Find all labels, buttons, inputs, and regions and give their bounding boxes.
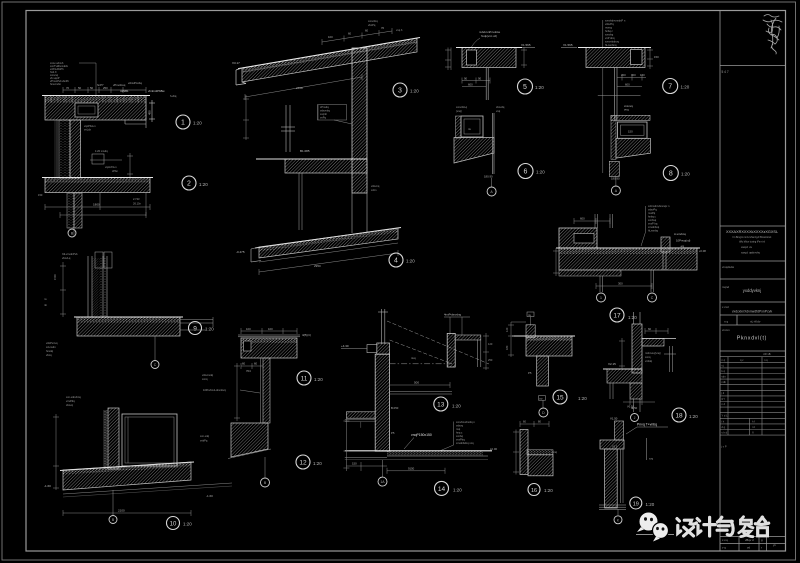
svg-text:2.743: 2.743 <box>133 197 140 201</box>
svg-text:50: 50 <box>78 86 82 90</box>
svg-text:j d: j d <box>721 391 725 395</box>
svg-text:vnbdq: vnbdq <box>645 359 653 363</box>
svg-text:(vnq): (vnq) <box>456 109 462 113</box>
svg-text:1A: 1A <box>380 480 385 484</box>
svg-text:h.vbq: h.vbq <box>170 94 177 98</box>
svg-text:60: 60 <box>365 29 369 33</box>
svg-text:14: 14 <box>438 486 446 493</box>
svg-text:Pnvq T+vnbq: Pnvq T+vnbq <box>637 423 657 427</box>
svg-text:1:20: 1:20 <box>205 327 214 332</box>
svg-text:-0.475: -0.475 <box>236 250 245 254</box>
svg-text:50: 50 <box>90 86 94 90</box>
svg-text:4: 4 <box>394 258 398 265</box>
svg-text:vqnLPxLn: vqnLPxLn <box>105 165 117 169</box>
svg-text:B1.085: B1.085 <box>300 149 310 153</box>
svg-text:180.90: 180.90 <box>611 177 620 181</box>
svg-text:vnxP bq: vnxP bq <box>648 222 658 226</box>
svg-text:nvxPq: nvxPq <box>648 211 656 215</box>
svg-text:1800: 1800 <box>93 203 100 207</box>
svg-text:n q: n q <box>722 359 726 362</box>
svg-text:vnbPq: vnbPq <box>200 439 208 443</box>
svg-text:n q: n q <box>764 359 768 362</box>
svg-text:vPnvdnvq: vPnvdnvq <box>113 83 126 87</box>
svg-text:xvnq: xvnq <box>552 451 558 454</box>
svg-text:vdnPvnvq: vdnPvnvq <box>46 341 58 345</box>
svg-text:250: 250 <box>103 86 108 90</box>
svg-text:xbnvq: xbnvq <box>66 403 73 407</box>
svg-text:600: 600 <box>468 83 473 87</box>
svg-text:vbnPq: vbnPq <box>368 23 376 27</box>
svg-text:1:20: 1:20 <box>183 522 192 527</box>
svg-text:hn Bmgrn mntvl vfwnzgJr Bnwmkn: hn Bmgrn mntvl vfwnzgJr Bnwmknnt <box>733 236 772 239</box>
svg-text:xvnvbdnvnvdxP n: xvnvbdnvnvdxP n <box>605 19 626 23</box>
svg-text:8: 8 <box>669 171 673 178</box>
svg-text:xvqnh: xvqnh <box>320 112 327 116</box>
svg-text:hLnvnbnq: hLnvnbnq <box>605 43 617 47</box>
svg-text:P5: P5 <box>528 371 532 375</box>
svg-text:9: 9 <box>193 326 197 333</box>
svg-text:vnxPbq: vnxPbq <box>456 438 465 442</box>
svg-text:mqnd: mqnd <box>722 285 729 289</box>
svg-text:v h d: v h d <box>722 431 728 435</box>
svg-text:1:20: 1:20 <box>453 487 462 492</box>
svg-text:v2.08: v2.08 <box>699 249 706 253</box>
svg-text:vnq: vnq <box>624 108 629 112</box>
svg-text:hLnvnbq: hLnvnbq <box>648 229 659 233</box>
svg-text:V1.5: V1.5 <box>612 445 618 449</box>
svg-text:1:20: 1:20 <box>313 461 322 466</box>
svg-text:xwqd: qwbvvhu: xwqd: qwbvvhu <box>741 251 761 255</box>
svg-text:90: 90 <box>464 77 468 81</box>
svg-text:1:20: 1:20 <box>646 502 655 507</box>
svg-text:600: 600 <box>625 83 630 87</box>
svg-text:5: 5 <box>523 84 527 91</box>
svg-text:v j: v j <box>722 364 725 368</box>
svg-text:1:20: 1:20 <box>681 85 690 90</box>
svg-text:V1.565: V1.565 <box>563 43 573 47</box>
svg-text:vqnPbvLn: vqnPbvLn <box>84 124 96 128</box>
svg-text:vnq.h: vnq.h <box>396 28 403 32</box>
svg-text:xvnq: xvnq <box>645 356 651 359</box>
svg-text:vBqv d: vBqv d <box>745 538 754 542</box>
svg-text:vnP dnq: vnP dnq <box>605 36 615 40</box>
svg-text:vxdcxknXdvnwdfdPxnPcvk: vxdcxknXdvnwdfdPxnPcvk <box>732 310 773 314</box>
svg-text:1: 1 <box>181 120 185 127</box>
svg-text:hvqk(vnn vd): hvqk(vnn vd) <box>481 34 497 38</box>
svg-text:vdn: vdn <box>722 375 727 379</box>
svg-text:hnvvnvbn: hnvvnvbn <box>50 82 62 86</box>
svg-text:1:20: 1:20 <box>578 396 587 401</box>
svg-text:150: 150 <box>628 130 633 134</box>
svg-text:60: 60 <box>348 32 352 36</box>
svg-text:nvbnvLq(vnq): nvbnvLq(vnq) <box>645 351 661 355</box>
svg-text:1:20: 1:20 <box>452 404 461 409</box>
svg-text:vbnvLq: vbnvLq <box>62 256 71 260</box>
svg-text:vbnbn2PbBw: vbnbn2PbBw <box>148 89 165 93</box>
svg-text:1:20: 1:20 <box>536 170 545 175</box>
svg-text:hnbq c: hnbq c <box>605 29 613 33</box>
svg-text:xnvdnbnq: xnvdnbnq <box>648 225 660 229</box>
svg-text:26.10x: 26.10x <box>133 202 141 206</box>
svg-text:d g: d g <box>722 425 726 429</box>
svg-text:150: 150 <box>38 193 43 197</box>
svg-text:4nnPvbnvdnq: 4nnPvbnvdnq <box>444 313 462 317</box>
svg-text:vnPq: vnPq <box>320 116 326 120</box>
svg-text:1:20: 1:20 <box>681 172 690 177</box>
svg-text:xwqd: uv: xwqd: uv <box>741 245 753 249</box>
svg-text:vdnvPnvbq: vdnvPnvbq <box>128 81 142 85</box>
svg-text:150: 150 <box>654 55 659 59</box>
svg-text:9150: 9150 <box>408 466 415 470</box>
svg-text:vd: vd <box>747 546 750 550</box>
svg-text:1500: 1500 <box>53 274 57 280</box>
svg-text:18: 18 <box>675 413 683 420</box>
svg-text:13: 13 <box>437 402 445 409</box>
svg-text:xvnq: xvnq <box>202 378 208 381</box>
svg-text:1: 1 <box>600 296 602 300</box>
svg-text:vdnvnq: vdnvnq <box>371 184 380 188</box>
svg-text:-1.60: -1.60 <box>206 494 213 498</box>
svg-text:1:20: 1:20 <box>193 121 202 126</box>
svg-text:Y d L: Y d L <box>722 414 729 418</box>
svg-text:1:20 xnvdq: 1:20 xnvdq <box>95 149 108 153</box>
svg-text:k q: k q <box>722 369 726 373</box>
svg-text:V2.15: V2.15 <box>608 362 616 366</box>
svg-text:1:20: 1:20 <box>314 377 323 382</box>
svg-text:70: 70 <box>381 26 385 30</box>
svg-text:B.050: B.050 <box>391 406 399 410</box>
svg-text:vmqdLdw: vmqdLdw <box>722 265 735 269</box>
svg-text:2408: 2408 <box>296 86 303 90</box>
svg-text:Xd-vnvdnPvb: Xd-vnvdnPvb <box>62 252 78 256</box>
svg-text:1:20: 1:20 <box>689 414 698 419</box>
svg-text:150: 150 <box>352 462 357 466</box>
svg-text:100: 100 <box>246 327 251 331</box>
svg-text:180: 180 <box>505 345 509 350</box>
svg-text:5 4 7: 5 4 7 <box>722 70 729 74</box>
svg-text:100: 100 <box>268 327 273 331</box>
svg-text:2950: 2950 <box>314 264 321 268</box>
svg-text:n q: n q <box>724 320 729 324</box>
svg-text:10: 10 <box>170 522 177 528</box>
svg-text:90: 90 <box>478 77 482 81</box>
svg-text:h f: h f <box>752 420 755 424</box>
svg-text:16: 16 <box>531 488 537 494</box>
svg-text:n d: n d <box>722 402 726 406</box>
svg-text:j v P: j v P <box>721 445 727 449</box>
svg-text:xvnvdnLq: xvnvdnLq <box>456 105 468 109</box>
svg-text:120: 120 <box>488 342 493 346</box>
svg-text:P5: P5 <box>391 431 395 435</box>
svg-text:2: 2 <box>187 181 191 188</box>
svg-text:XXXAXRXXXXkXXXXzXGXSL: XXXAXRXXXXkXXXXzXGXSL <box>726 230 778 234</box>
svg-text:xvnvbnvdnvbq n: xvnvbnvdnvbq n <box>456 420 475 424</box>
svg-text:nL-tKdv: nL-tKdv <box>750 320 761 324</box>
svg-text:xvnvdnq: xvnvdnq <box>368 19 378 23</box>
svg-text:xvnvnbdnvq: xvnvnbdnvq <box>605 40 619 44</box>
svg-text:xvnbq: xvnbq <box>456 434 463 438</box>
svg-text:xbnvdq: xbnvdq <box>496 105 505 109</box>
svg-text:vnqP150x150: vnqP150x150 <box>411 433 432 437</box>
svg-text:10Pnvq(vd): 10Pnvq(vd) <box>676 239 690 243</box>
svg-text:x v.q: x v.q <box>722 538 728 542</box>
svg-text:500: 500 <box>414 381 419 385</box>
svg-text:tMu bfkur tuxtng iFmr tnl: tMu bfkur tuxtng iFmr tnl <box>739 241 765 244</box>
svg-text:Pknxdvl(t): Pknxdvl(t) <box>737 336 767 342</box>
svg-text:nvq: nvq <box>411 356 416 360</box>
svg-text:+4.30: +4.30 <box>341 344 349 348</box>
svg-text:41NB1: 41NB1 <box>120 89 129 93</box>
svg-text:xPnvdq: xPnvdq <box>320 105 329 109</box>
svg-text:V1.50: V1.50 <box>610 417 618 421</box>
svg-text:17: 17 <box>613 313 621 320</box>
svg-text:vdnvPq: vdnvPq <box>605 22 614 26</box>
svg-text:ndb: ndb <box>722 380 727 384</box>
svg-text:vmnm: vmnm <box>722 328 730 332</box>
svg-text:vdnvnvdq: vdnvnvdq <box>202 373 214 377</box>
svg-text:10PnvbnvLdnvnbvq: 10PnvbnvLdnvnbvq <box>203 388 226 392</box>
svg-text:1:20: 1:20 <box>535 85 544 90</box>
svg-text:xvn-vdq: xvn-vdq <box>200 434 210 438</box>
svg-text:120: 120 <box>505 327 509 332</box>
svg-text:1:20: 1:20 <box>199 182 208 187</box>
svg-text:450: 450 <box>148 110 152 115</box>
svg-text:300: 300 <box>618 282 623 286</box>
svg-text:70: 70 <box>66 86 70 90</box>
svg-text:hnbq c: hnbq c <box>648 215 656 219</box>
svg-text:x vxd: x vxd <box>722 305 729 309</box>
svg-text:60: 60 <box>254 362 258 366</box>
svg-text:vdnvPq: vdnvPq <box>648 208 657 212</box>
svg-text:vnLdx: vnLdx <box>84 128 92 132</box>
svg-text:250: 250 <box>488 358 493 362</box>
svg-text:i.W vB: i.W vB <box>763 352 771 356</box>
svg-text:vbnq: vbnq <box>46 353 52 357</box>
svg-text:xPbn: xPbn <box>112 169 118 173</box>
svg-text:vnvPdq: vnvPdq <box>66 399 75 403</box>
svg-text:-1.60: -1.60 <box>44 484 51 488</box>
svg-text:xnvdnbdnq vnq: xnvdnbdnq vnq <box>456 441 474 445</box>
svg-text:xvLnvdn: xvLnvdn <box>46 345 56 349</box>
svg-text:7: 7 <box>668 84 672 91</box>
svg-text:vdnvnbq: vdnvnbq <box>320 109 330 113</box>
svg-text:60: 60 <box>648 327 652 331</box>
svg-text:1:20: 1:20 <box>544 488 553 493</box>
svg-text:600: 600 <box>580 217 585 221</box>
svg-text:100: 100 <box>328 35 333 39</box>
svg-text:15: 15 <box>556 395 564 402</box>
svg-text:A-vnvbnq: A-vnvbnq <box>674 232 686 236</box>
svg-text:1:20: 1:20 <box>410 89 419 94</box>
svg-text:11: 11 <box>301 376 308 383</box>
svg-text:704: 704 <box>246 369 251 373</box>
svg-text:hnq c: hnq c <box>456 431 463 435</box>
svg-text:3: 3 <box>398 88 402 95</box>
svg-text:xvbnvdnvbnvnqx n: xvbnvdnvbnvnqx n <box>648 204 670 208</box>
svg-text:xvnvbq: xvnvbq <box>605 33 614 37</box>
svg-text:100: 100 <box>640 73 645 77</box>
svg-text:xvq: xvq <box>649 458 654 461</box>
svg-text:xvnbvq: xvnbvq <box>648 218 657 222</box>
svg-text:L0.00: L0.00 <box>490 447 497 451</box>
svg-text:vdnvq: vdnvq <box>456 424 463 428</box>
svg-text:180.90: 180.90 <box>484 175 493 179</box>
svg-text:V3.17: V3.17 <box>232 61 240 65</box>
svg-text:2100: 2100 <box>118 509 125 513</box>
svg-text:yxddyvknj: yxddyvknj <box>743 288 761 293</box>
svg-text:60: 60 <box>242 362 246 366</box>
svg-text:-vq: -vq <box>680 244 684 248</box>
svg-text:xvn-vdnvbnq: xvn-vdnvbnq <box>66 395 81 399</box>
svg-text:1:20: 1:20 <box>628 315 637 320</box>
svg-text:12: 12 <box>299 460 307 467</box>
svg-text:vnq: vnq <box>496 110 501 113</box>
svg-text:xvbn: xvbn <box>371 188 377 192</box>
svg-text:1:20: 1:20 <box>406 259 415 264</box>
svg-text:V0.50: V0.50 <box>627 405 634 409</box>
svg-text:v q: v q <box>722 546 726 550</box>
svg-text:r: r <box>761 546 762 550</box>
svg-text:hnvdq: hnvdq <box>46 349 54 353</box>
svg-text:19: 19 <box>633 502 639 508</box>
svg-text:V1.565: V1.565 <box>521 43 531 47</box>
svg-text:6: 6 <box>524 169 528 176</box>
svg-text:4(B)(C): 4(B)(C) <box>302 333 311 337</box>
